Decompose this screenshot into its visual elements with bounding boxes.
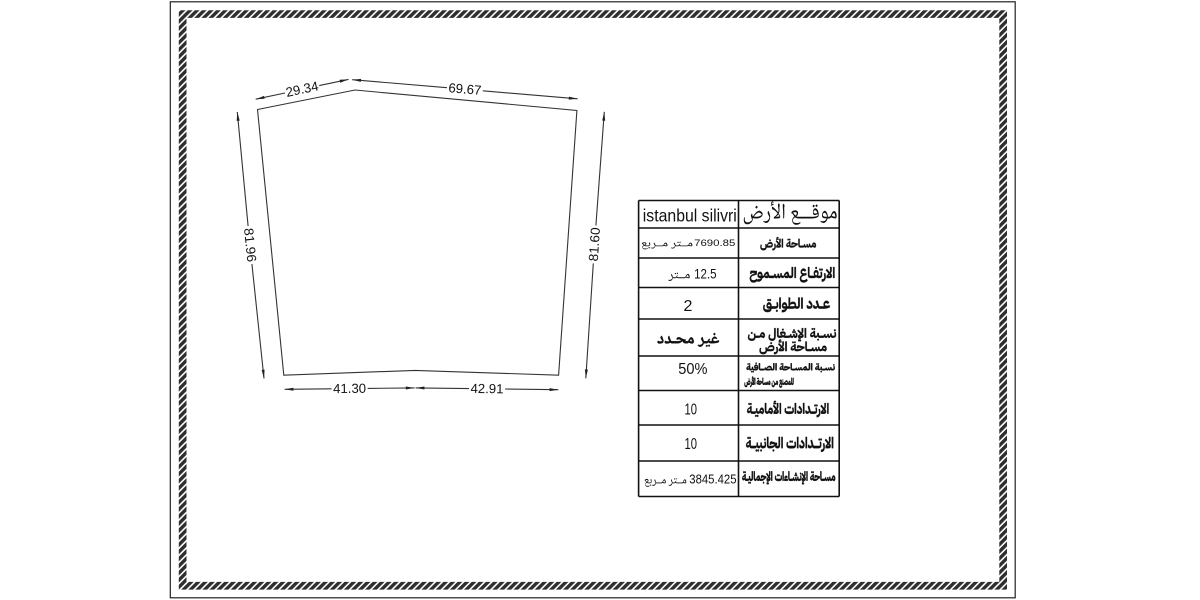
svg-text:2: 2 [684, 298, 693, 315]
svg-text:istanbul silivri: istanbul silivri [643, 206, 737, 226]
svg-text:41.30: 41.30 [333, 381, 366, 396]
svg-text:42.91: 42.91 [470, 381, 503, 396]
svg-text:50%: 50% [678, 361, 707, 378]
svg-text:10: 10 [684, 402, 697, 419]
svg-text:10: 10 [684, 436, 697, 453]
svg-text:69.67: 69.67 [448, 80, 482, 98]
svg-text:3845.425: 3845.425 [689, 471, 736, 486]
svg-text:7690.85: 7690.85 [694, 238, 735, 248]
svg-text:12.5: 12.5 [694, 266, 717, 281]
svg-text:81.60: 81.60 [586, 227, 603, 262]
